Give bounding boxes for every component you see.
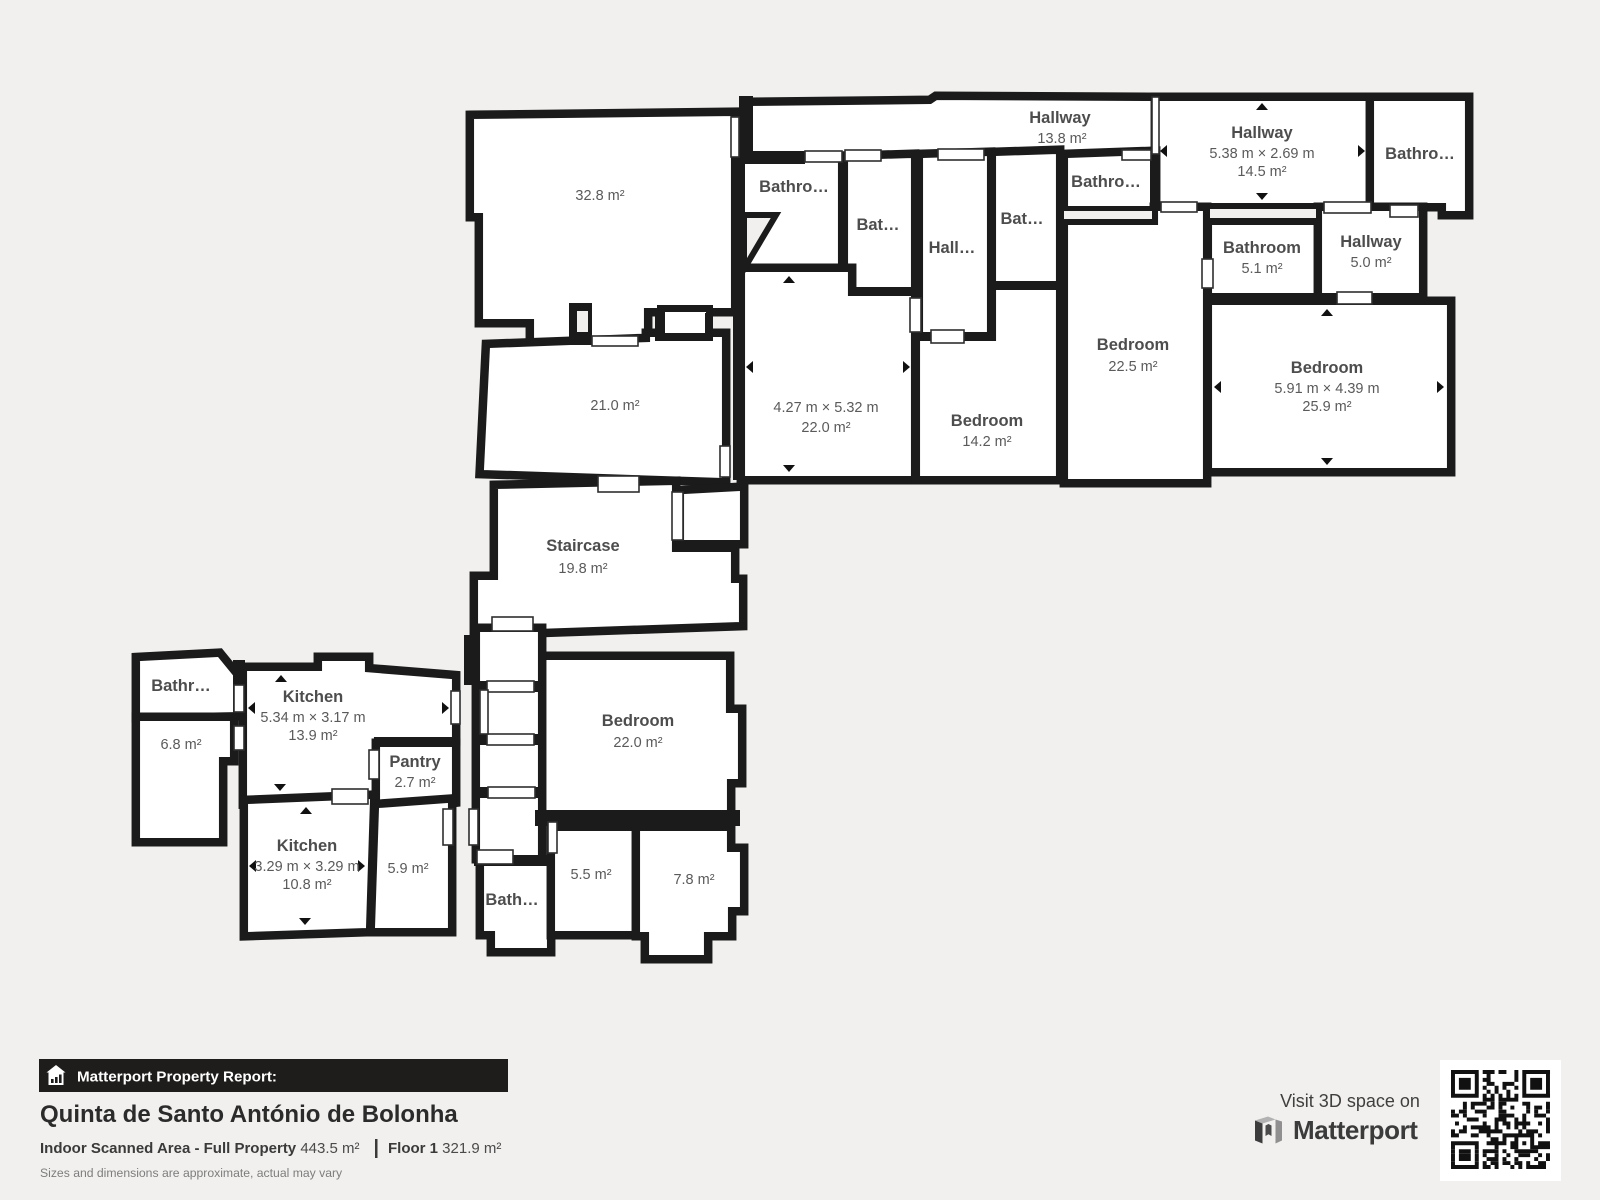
svg-text:5.38 m × 2.69 m: 5.38 m × 2.69 m xyxy=(1209,146,1314,162)
svg-text:Hall…: Hall… xyxy=(929,239,976,257)
svg-text:Staircase: Staircase xyxy=(546,537,619,555)
svg-text:22.5 m²: 22.5 m² xyxy=(1108,359,1157,375)
svg-text:10.8 m²: 10.8 m² xyxy=(282,877,331,893)
svg-text:Kitchen: Kitchen xyxy=(283,688,344,706)
svg-text:Bathro…: Bathro… xyxy=(1385,145,1455,163)
svg-text:Bedroom: Bedroom xyxy=(1097,336,1169,354)
svg-text:Hallway: Hallway xyxy=(1029,109,1091,127)
svg-text:19.8 m²: 19.8 m² xyxy=(558,561,607,577)
svg-text:Bathr…: Bathr… xyxy=(151,677,211,695)
svg-text:Bath…: Bath… xyxy=(485,891,538,909)
svg-text:Matterport Property Report:: Matterport Property Report: xyxy=(77,1069,277,1086)
svg-text:Matterport: Matterport xyxy=(1293,1115,1418,1145)
svg-text:21.0 m²: 21.0 m² xyxy=(590,398,639,414)
svg-text:Indoor Scanned Area - Full Pro: Indoor Scanned Area - Full Property 443.… xyxy=(40,1140,360,1157)
svg-text:5.91 m × 4.39 m: 5.91 m × 4.39 m xyxy=(1274,381,1379,397)
svg-text:Floor 1 321.9 m²: Floor 1 321.9 m² xyxy=(388,1140,501,1157)
svg-text:32.8 m²: 32.8 m² xyxy=(575,188,624,204)
svg-text:2.7 m²: 2.7 m² xyxy=(394,775,435,791)
svg-text:5.9 m²: 5.9 m² xyxy=(387,861,428,877)
svg-text:5.0 m²: 5.0 m² xyxy=(1350,255,1391,271)
svg-text:Bat…: Bat… xyxy=(856,216,899,234)
svg-text:Bedroom: Bedroom xyxy=(1291,359,1363,377)
svg-text:13.9 m²: 13.9 m² xyxy=(288,728,337,744)
svg-text:14.5 m²: 14.5 m² xyxy=(1237,164,1286,180)
svg-text:Quinta de Santo António de Bol: Quinta de Santo António de Bolonha xyxy=(40,1101,458,1128)
svg-text:Bathro…: Bathro… xyxy=(759,178,829,196)
svg-text:13.8 m²: 13.8 m² xyxy=(1037,131,1086,147)
svg-text:Pantry: Pantry xyxy=(389,753,441,771)
svg-text:25.9 m²: 25.9 m² xyxy=(1302,399,1351,415)
svg-text:Visit 3D space on: Visit 3D space on xyxy=(1280,1091,1420,1111)
svg-text:5.1 m²: 5.1 m² xyxy=(1241,261,1282,277)
svg-text:5.34 m × 3.17 m: 5.34 m × 3.17 m xyxy=(260,710,365,726)
svg-text:Bedroom: Bedroom xyxy=(951,412,1023,430)
svg-text:Hallway: Hallway xyxy=(1340,233,1402,251)
svg-text:Sizes and dimensions are appro: Sizes and dimensions are approximate, ac… xyxy=(40,1166,343,1180)
svg-text:6.8 m²: 6.8 m² xyxy=(160,737,201,753)
svg-text:Bedroom: Bedroom xyxy=(602,712,674,730)
svg-text:Hallway: Hallway xyxy=(1231,124,1293,142)
svg-text:Bathroom: Bathroom xyxy=(1223,239,1301,257)
svg-text:14.2 m²: 14.2 m² xyxy=(962,434,1011,450)
svg-text:Kitchen: Kitchen xyxy=(277,837,338,855)
svg-text:Bathro…: Bathro… xyxy=(1071,173,1141,191)
svg-text:4.27 m × 5.32 m: 4.27 m × 5.32 m xyxy=(773,400,878,416)
svg-text:5.5 m²: 5.5 m² xyxy=(570,867,611,883)
svg-text:3.29 m × 3.29 m: 3.29 m × 3.29 m xyxy=(254,859,359,875)
svg-text:22.0 m²: 22.0 m² xyxy=(801,420,850,436)
svg-text:7.8 m²: 7.8 m² xyxy=(673,872,714,888)
svg-text:Bat…: Bat… xyxy=(1000,210,1043,228)
svg-text:22.0 m²: 22.0 m² xyxy=(613,735,662,751)
